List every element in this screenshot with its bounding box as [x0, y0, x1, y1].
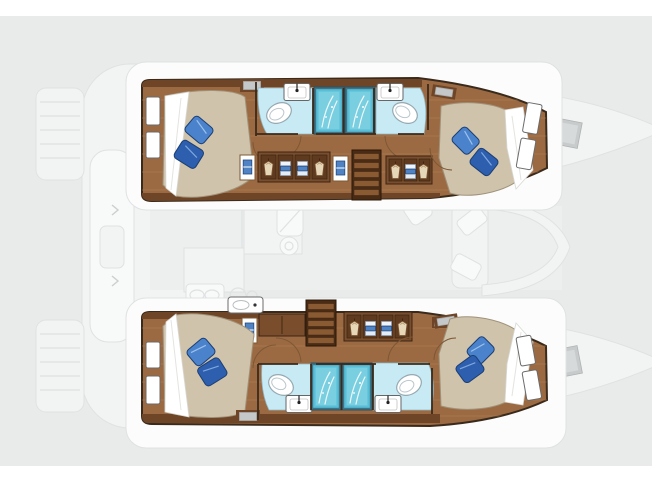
shower-stall: [342, 363, 372, 410]
shower-stall: [345, 87, 375, 134]
wardrobe: [344, 312, 412, 341]
transom-steps-top: [36, 88, 84, 180]
wardrobe: [258, 152, 330, 182]
hull-window: [146, 97, 160, 125]
sink-icon: [377, 84, 403, 101]
locker-icon: [333, 156, 348, 181]
linen-shelf-icon: [382, 322, 392, 336]
boat-layout-plan: [0, 0, 652, 489]
sink-icon: [284, 84, 310, 101]
upper-hull: [126, 62, 562, 210]
hull-window: [146, 132, 160, 158]
linen-shelf-icon: [281, 162, 291, 176]
shower-stall: [311, 363, 341, 410]
overhead-hatch: [236, 410, 260, 423]
cockpit-table: [100, 226, 124, 268]
sink-icon: [286, 396, 312, 413]
transom-steps-bottom: [36, 320, 84, 412]
sink-unit: [228, 297, 263, 313]
sink-icon: [375, 396, 401, 413]
hull-window: [146, 376, 160, 404]
locker-icon: [240, 155, 255, 180]
linen-shelf-icon: [406, 165, 416, 179]
screenshot-canvas: [0, 0, 652, 489]
low-cabinet: [259, 314, 305, 336]
linen-shelf-icon: [366, 322, 376, 336]
hull-window: [146, 342, 160, 368]
wardrobe: [386, 156, 432, 184]
linen-shelf-icon: [298, 162, 308, 176]
shower-stall: [314, 87, 344, 134]
companionway-stairs: [352, 150, 381, 200]
lower-hull: [126, 297, 566, 448]
companionway-stairs: [306, 300, 336, 346]
